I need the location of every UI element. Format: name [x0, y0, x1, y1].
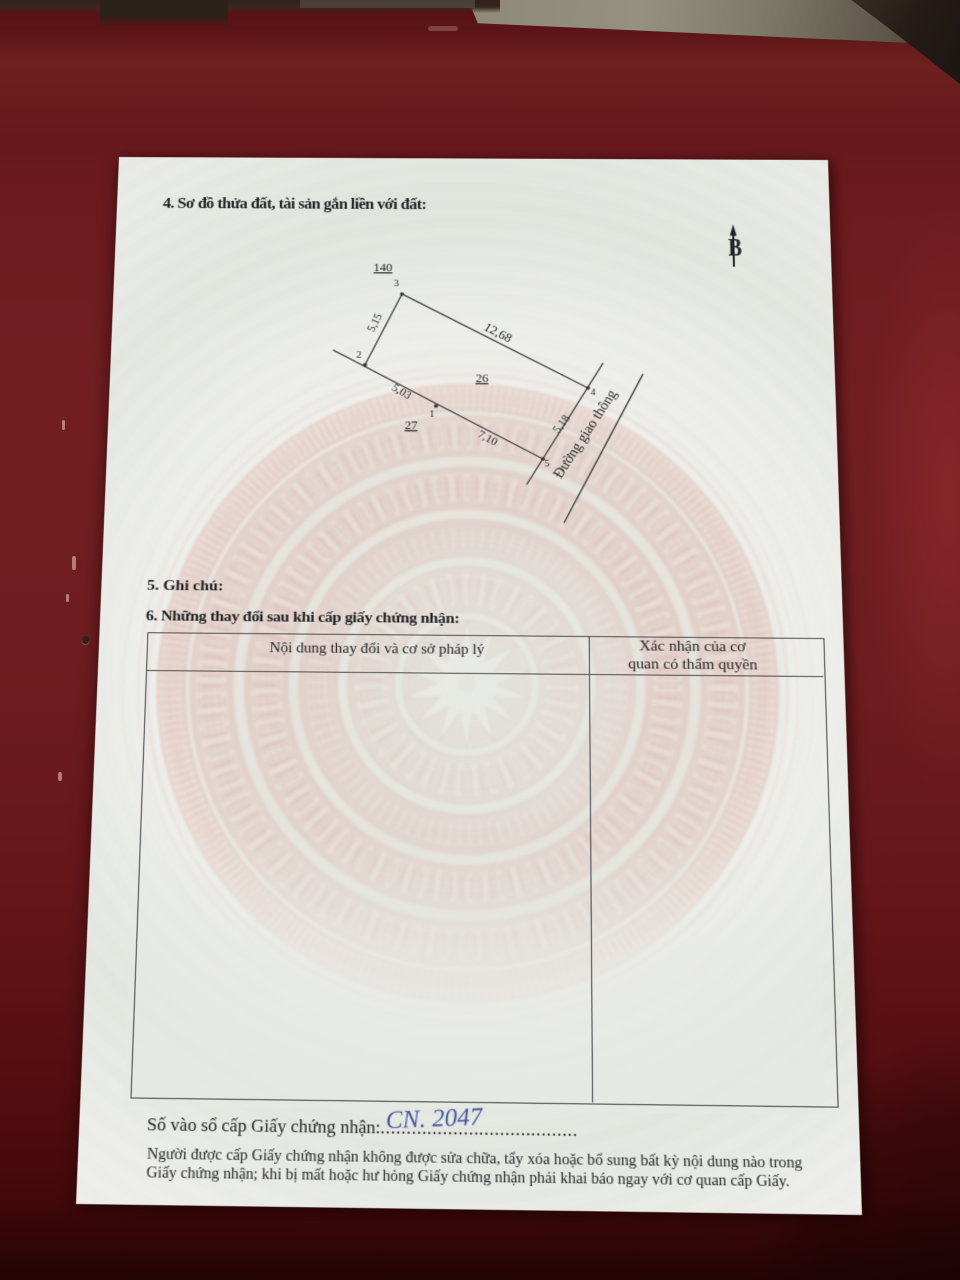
- svg-text:140: 140: [373, 261, 392, 274]
- svg-text:27: 27: [405, 419, 418, 432]
- svg-text:7,10: 7,10: [475, 428, 499, 448]
- svg-text:5: 5: [545, 459, 551, 469]
- svg-text:1: 1: [429, 410, 435, 420]
- svg-text:5,03: 5,03: [389, 382, 413, 402]
- svg-text:4: 4: [590, 388, 596, 398]
- svg-text:2: 2: [356, 351, 362, 361]
- svg-text:12,68: 12,68: [481, 320, 514, 345]
- svg-text:B: B: [728, 235, 742, 262]
- svg-text:3: 3: [394, 279, 399, 289]
- svg-text:26: 26: [476, 372, 489, 385]
